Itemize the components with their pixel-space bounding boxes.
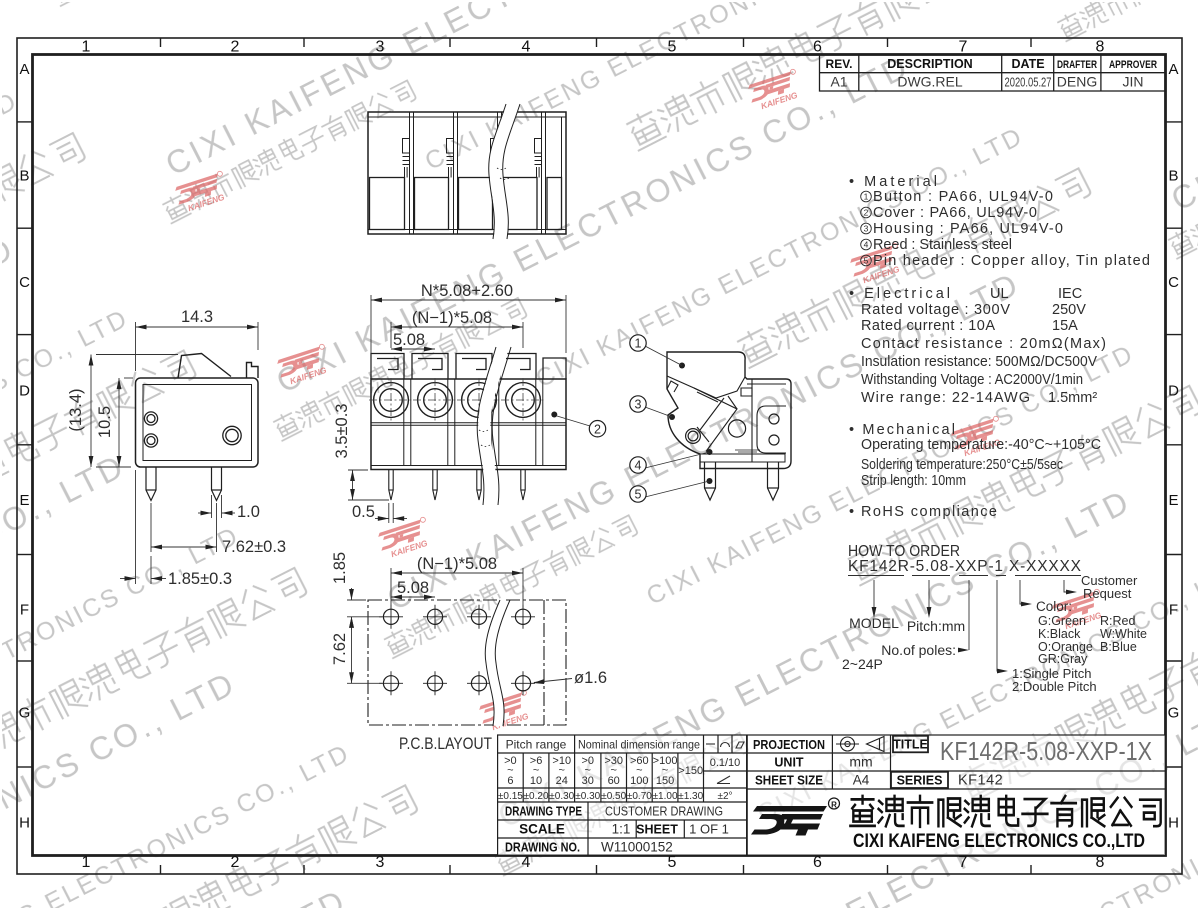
- svg-text:5.08: 5.08: [397, 579, 429, 597]
- svg-text:E: E: [1168, 492, 1178, 509]
- svg-text:Cover : PA66, UL94V-0: Cover : PA66, UL94V-0: [873, 205, 1037, 221]
- svg-text:H: H: [19, 815, 30, 832]
- svg-text:1: 1: [864, 192, 869, 202]
- svg-text:7: 7: [959, 39, 968, 56]
- svg-text:±0.30: ±0.30: [549, 791, 574, 802]
- svg-text:±0.70: ±0.70: [627, 791, 652, 802]
- svg-text:2: 2: [231, 39, 240, 56]
- svg-text:C: C: [1168, 274, 1179, 291]
- svg-text:1: 1: [635, 337, 642, 351]
- svg-text:ø1.6: ø1.6: [574, 669, 607, 687]
- svg-text:W11000152: W11000152: [601, 840, 673, 855]
- svg-text:mm: mm: [849, 754, 872, 770]
- svg-text:3.5±0.3: 3.5±0.3: [333, 404, 351, 459]
- svg-text:H: H: [1168, 815, 1179, 832]
- svg-text:4: 4: [635, 459, 642, 473]
- svg-text:JIN: JIN: [1123, 74, 1144, 90]
- svg-text:10.5: 10.5: [96, 406, 114, 438]
- svg-text:30: 30: [582, 775, 594, 787]
- svg-text:5: 5: [668, 39, 677, 56]
- svg-text:Pitch:mm: Pitch:mm: [907, 618, 965, 634]
- svg-text:1.85: 1.85: [331, 552, 349, 584]
- svg-text:±0.50: ±0.50: [601, 791, 626, 802]
- svg-text:APPROVER: APPROVER: [1109, 59, 1157, 71]
- svg-text:Insulation resistance: 500MΩ/D: Insulation resistance: 500MΩ/DC500V: [861, 354, 1097, 370]
- svg-text:UL: UL: [990, 286, 1009, 302]
- svg-text:14.3: 14.3: [181, 308, 213, 326]
- svg-text:DRAFTER: DRAFTER: [1057, 59, 1097, 71]
- svg-text:Color:: Color:: [1036, 599, 1072, 614]
- svg-text:6: 6: [813, 854, 822, 871]
- svg-text:±1.30: ±1.30: [678, 791, 703, 802]
- svg-text:2: 2: [594, 423, 601, 437]
- svg-text:Pitch range: Pitch range: [506, 738, 567, 752]
- svg-text:D: D: [1168, 383, 1179, 400]
- svg-text:5: 5: [668, 854, 677, 871]
- svg-text:PROJECTION: PROJECTION: [753, 738, 825, 752]
- svg-text:(N−1)*5.08: (N−1)*5.08: [417, 555, 497, 573]
- svg-text:DESCRIPTION: DESCRIPTION: [887, 57, 972, 71]
- svg-text:G: G: [1168, 705, 1180, 722]
- svg-text:B: B: [19, 168, 29, 185]
- svg-text:±1.00: ±1.00: [653, 791, 678, 802]
- svg-text:E: E: [19, 492, 29, 509]
- svg-text:TITLE: TITLE: [893, 737, 928, 751]
- svg-text:Wire range: 22-14AWG: Wire range: 22-14AWG: [861, 390, 1030, 406]
- svg-text:2~24P: 2~24P: [842, 656, 883, 672]
- svg-text:• Mechanical: • Mechanical: [849, 422, 955, 438]
- svg-text:KF142R-5.08-XXP-1X: KF142R-5.08-XXP-1X: [940, 736, 1152, 766]
- svg-text:4: 4: [864, 240, 869, 250]
- svg-text:W:White: W:White: [1100, 627, 1147, 641]
- svg-text:1: 1: [82, 39, 91, 56]
- svg-text:D: D: [19, 383, 30, 400]
- svg-text:2020.05.27: 2020.05.27: [1005, 76, 1052, 90]
- svg-text:• RoHS compliance: • RoHS compliance: [849, 504, 997, 520]
- svg-text:Housing : PA66, UL94V-0: Housing : PA66, UL94V-0: [873, 221, 1063, 237]
- svg-text:2: 2: [864, 208, 869, 218]
- svg-text:1.0: 1.0: [237, 503, 260, 521]
- svg-text:4: 4: [522, 39, 531, 56]
- svg-text:Contact resistance : 20mΩ(Max): Contact resistance : 20mΩ(Max): [861, 336, 1106, 352]
- svg-text:G: G: [19, 705, 31, 722]
- svg-text:7.62±0.3: 7.62±0.3: [222, 538, 286, 556]
- svg-text:KF142R-5.08-XXP-1 X-XXXXX: KF142R-5.08-XXP-1 X-XXXXX: [848, 558, 1082, 575]
- svg-text:SHEET SIZE: SHEET SIZE: [755, 774, 823, 788]
- svg-text:Request: Request: [1083, 586, 1132, 601]
- svg-text:3: 3: [376, 854, 385, 871]
- svg-text:±0.30: ±0.30: [575, 791, 600, 802]
- svg-text:DRAWING TYPE: DRAWING TYPE: [505, 805, 582, 819]
- svg-text:250V: 250V: [1052, 302, 1086, 318]
- svg-text:UNIT: UNIT: [774, 756, 804, 770]
- svg-text:G:Green: G:Green: [1038, 614, 1086, 628]
- svg-text:R: R: [831, 800, 837, 809]
- svg-text:DRAWING NO.: DRAWING NO.: [505, 841, 580, 855]
- svg-text:C: C: [19, 274, 30, 291]
- svg-text:B:Blue: B:Blue: [1100, 640, 1137, 654]
- svg-text:6: 6: [507, 775, 513, 787]
- svg-text:7.62: 7.62: [331, 633, 349, 665]
- svg-text:0.5: 0.5: [352, 503, 375, 521]
- svg-text:4: 4: [522, 854, 531, 871]
- svg-text:Reed : Stainless steel: Reed : Stainless steel: [873, 237, 1012, 253]
- svg-text:5.08: 5.08: [393, 331, 425, 349]
- svg-text:0.1/10: 0.1/10: [710, 757, 741, 769]
- svg-text:• Electrical: • Electrical: [849, 286, 950, 302]
- svg-text:(13.4): (13.4): [67, 388, 85, 431]
- svg-text:7: 7: [959, 854, 968, 871]
- svg-text:A1: A1: [830, 74, 847, 90]
- svg-text:DWG.REL: DWG.REL: [897, 74, 963, 90]
- svg-text:2:Double Pitch: 2:Double Pitch: [1012, 679, 1097, 694]
- svg-text:24: 24: [556, 775, 568, 787]
- svg-text:Rated current : 10A: Rated current : 10A: [861, 318, 995, 334]
- svg-text:1: 1: [82, 854, 91, 871]
- svg-text:Pin header : Copper alloy, Tin: Pin header : Copper alloy, Tin plated: [873, 253, 1150, 269]
- svg-text:SHEET: SHEET: [636, 823, 678, 837]
- svg-text:A: A: [1168, 61, 1178, 78]
- svg-text:±2°: ±2°: [717, 791, 732, 802]
- svg-text:SERIES: SERIES: [897, 773, 943, 787]
- svg-text:Soldering temperature:250°C±5/: Soldering temperature:250°C±5/5sec: [861, 457, 1063, 473]
- svg-text:(N−1)*5.08: (N−1)*5.08: [412, 309, 492, 327]
- svg-text:DENG: DENG: [1057, 74, 1097, 90]
- svg-text:Rated voltage : 300V: Rated voltage : 300V: [861, 302, 1010, 318]
- svg-text:P.C.B.LAYOUT: P.C.B.LAYOUT: [399, 735, 492, 753]
- svg-text:No.of poles:: No.of poles:: [881, 642, 956, 658]
- svg-text:Nominal dimension range: Nominal dimension range: [578, 738, 700, 752]
- svg-text:A4: A4: [853, 773, 870, 788]
- svg-text:3: 3: [864, 224, 869, 234]
- svg-text:3: 3: [376, 39, 385, 56]
- svg-text:R:Red: R:Red: [1100, 614, 1135, 628]
- svg-text:F: F: [1169, 602, 1178, 619]
- svg-text:REV.: REV.: [826, 57, 853, 71]
- svg-text:1.5mm²: 1.5mm²: [1048, 390, 1097, 406]
- svg-text:N*5.08+2.60: N*5.08+2.60: [421, 282, 513, 300]
- svg-text:8: 8: [1096, 854, 1105, 871]
- svg-text:10: 10: [530, 775, 542, 787]
- svg-text:5: 5: [635, 488, 642, 502]
- svg-text:GR:Gray: GR:Gray: [1038, 652, 1088, 666]
- svg-text:Withstanding Voltage : AC2000V: Withstanding Voltage : AC2000V/1min: [861, 372, 1083, 388]
- svg-text:8: 8: [1096, 39, 1105, 56]
- svg-text:1:1: 1:1: [612, 822, 631, 837]
- svg-text:CIXI KAIFENG ELECTRONICS CO.,L: CIXI KAIFENG ELECTRONICS CO.,LTD: [853, 830, 1145, 852]
- svg-text:±0.20: ±0.20: [524, 791, 549, 802]
- svg-text:KF142: KF142: [958, 773, 1003, 789]
- svg-text:A: A: [19, 61, 29, 78]
- svg-text:6: 6: [813, 39, 822, 56]
- svg-text:Button : PA66, UL94V-0: Button : PA66, UL94V-0: [873, 189, 1053, 205]
- svg-text:3: 3: [635, 398, 642, 412]
- svg-text:150: 150: [656, 775, 674, 787]
- svg-text:MODEL: MODEL: [849, 615, 899, 631]
- svg-text:SCALE: SCALE: [519, 822, 565, 837]
- svg-text:CUSTOMER DRAWING: CUSTOMER DRAWING: [605, 805, 723, 819]
- svg-text:2: 2: [231, 854, 240, 871]
- svg-text:B: B: [1168, 168, 1178, 185]
- svg-text:5: 5: [864, 256, 869, 266]
- svg-text:1 OF 1: 1 OF 1: [689, 822, 729, 837]
- svg-text:F: F: [20, 602, 29, 619]
- svg-text:Strip length: 10mm: Strip length: 10mm: [861, 473, 966, 489]
- svg-text:>150: >150: [678, 765, 703, 777]
- svg-text:Operating temperature:-40°C~+1: Operating temperature:-40°C~+105°C: [861, 437, 1101, 453]
- svg-text:K:Black: K:Black: [1038, 627, 1081, 641]
- svg-text:15A: 15A: [1052, 318, 1078, 334]
- svg-text:DATE: DATE: [1011, 57, 1044, 71]
- svg-text:IEC: IEC: [1058, 286, 1082, 302]
- svg-text:±0.15: ±0.15: [498, 791, 523, 802]
- svg-text:60: 60: [608, 775, 620, 787]
- svg-text:100: 100: [630, 775, 648, 787]
- svg-text:1.85±0.3: 1.85±0.3: [168, 570, 232, 588]
